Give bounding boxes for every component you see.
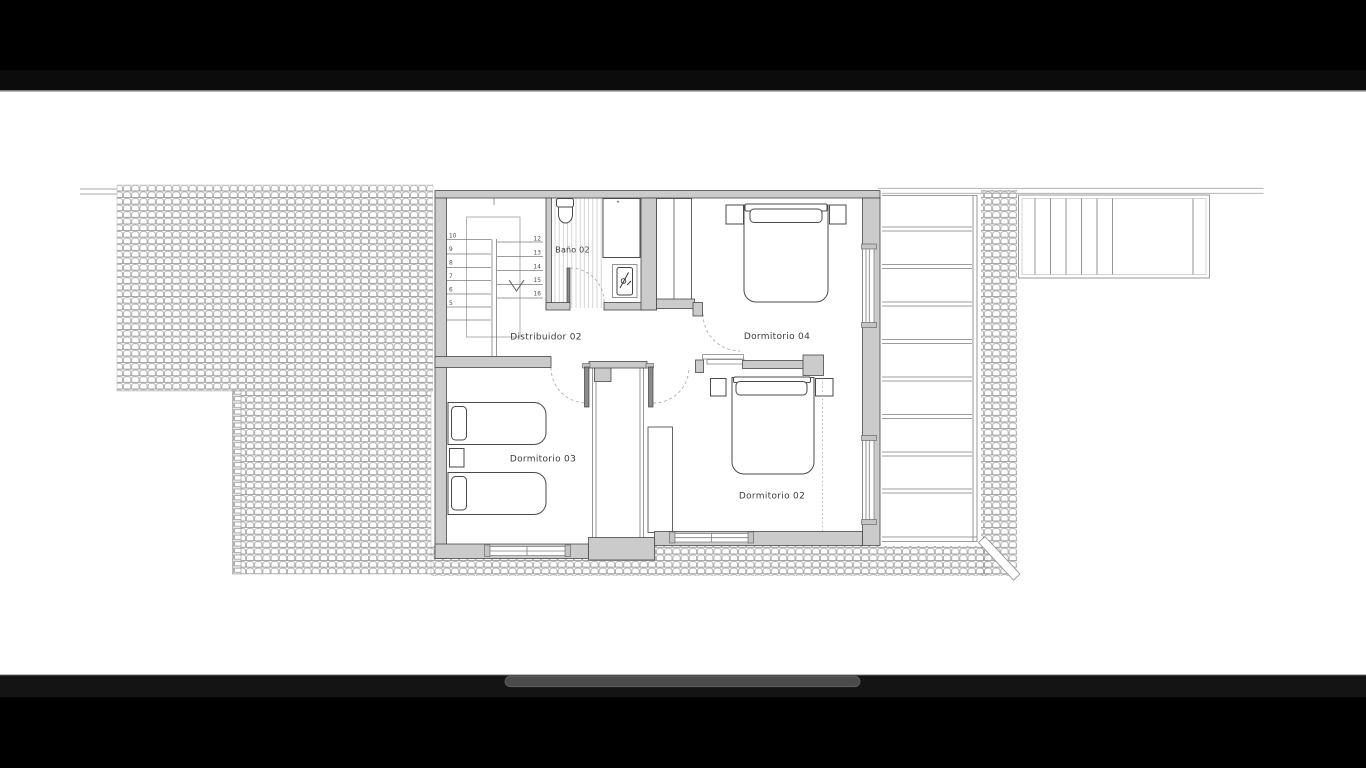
- letterbox-top-inner: [0, 70, 1366, 91]
- roof-hatch-left: [117, 185, 433, 391]
- terrace-hatch-right: [979, 190, 1021, 580]
- exterior-stair: [1019, 195, 1210, 278]
- letterbox-bottom: [0, 697, 1366, 768]
- letterbox-top: [0, 0, 1366, 70]
- room-label-dormitorio-04: Dormitorio 04: [744, 332, 810, 342]
- room-label-bano-02: Baño 02: [555, 246, 589, 255]
- door-leaf: [585, 367, 590, 407]
- stair-step-number: 6: [449, 288, 453, 294]
- shower-enclosure: [603, 199, 640, 258]
- terrace-hatch-left: [233, 391, 432, 574]
- sliding-door: [703, 355, 745, 365]
- canvas-top-edge: [0, 90, 1366, 91]
- nightstand: [711, 379, 727, 397]
- canvas-bottom-edge: [0, 674, 1366, 675]
- nightstand: [726, 205, 744, 224]
- stair-step-number: 16: [534, 292, 542, 298]
- bathroom-door-leaf: [567, 268, 570, 304]
- room-label-dormitorio-02: Dormitorio 02: [739, 492, 805, 502]
- stair-step-number: 12: [534, 237, 542, 243]
- nightstand: [830, 205, 847, 224]
- room-label-dormitorio-03: Dormitorio 03: [510, 455, 576, 465]
- window-south-bedroom03: [485, 545, 571, 557]
- terrace-edge-wall: [233, 391, 242, 574]
- room-label-distribuidor-02: Distribuidor 02: [510, 333, 582, 343]
- nightstand: [816, 379, 834, 397]
- window-east-upper: [863, 249, 875, 323]
- stair-step-number: 9: [449, 247, 453, 253]
- stair-step-number: 5: [449, 301, 453, 307]
- single-bed: [448, 403, 546, 445]
- stair-step-number: 7: [449, 274, 453, 280]
- stair-step-number: 14: [534, 265, 542, 271]
- window-south-bedroom02: [670, 532, 754, 543]
- viewer-stage: 10 9 8 7 6 5 12 13 14 15 16: [0, 0, 1366, 768]
- double-bed: [732, 377, 814, 474]
- stair-step-number: 10: [449, 234, 457, 240]
- stair-step-number: 8: [449, 261, 453, 267]
- scrollbar-handle[interactable]: [505, 676, 860, 687]
- window-east-lower: [863, 441, 875, 520]
- stair-step-number: 13: [534, 251, 542, 257]
- door-leaf: [649, 367, 654, 407]
- double-bed: [744, 204, 828, 302]
- washbasin-fixture: [613, 265, 638, 298]
- stair-step-number: 15: [534, 278, 542, 284]
- single-bed: [448, 473, 546, 515]
- nightstand: [450, 449, 465, 468]
- wardrobe: [657, 199, 692, 300]
- wall-recess: [648, 427, 673, 533]
